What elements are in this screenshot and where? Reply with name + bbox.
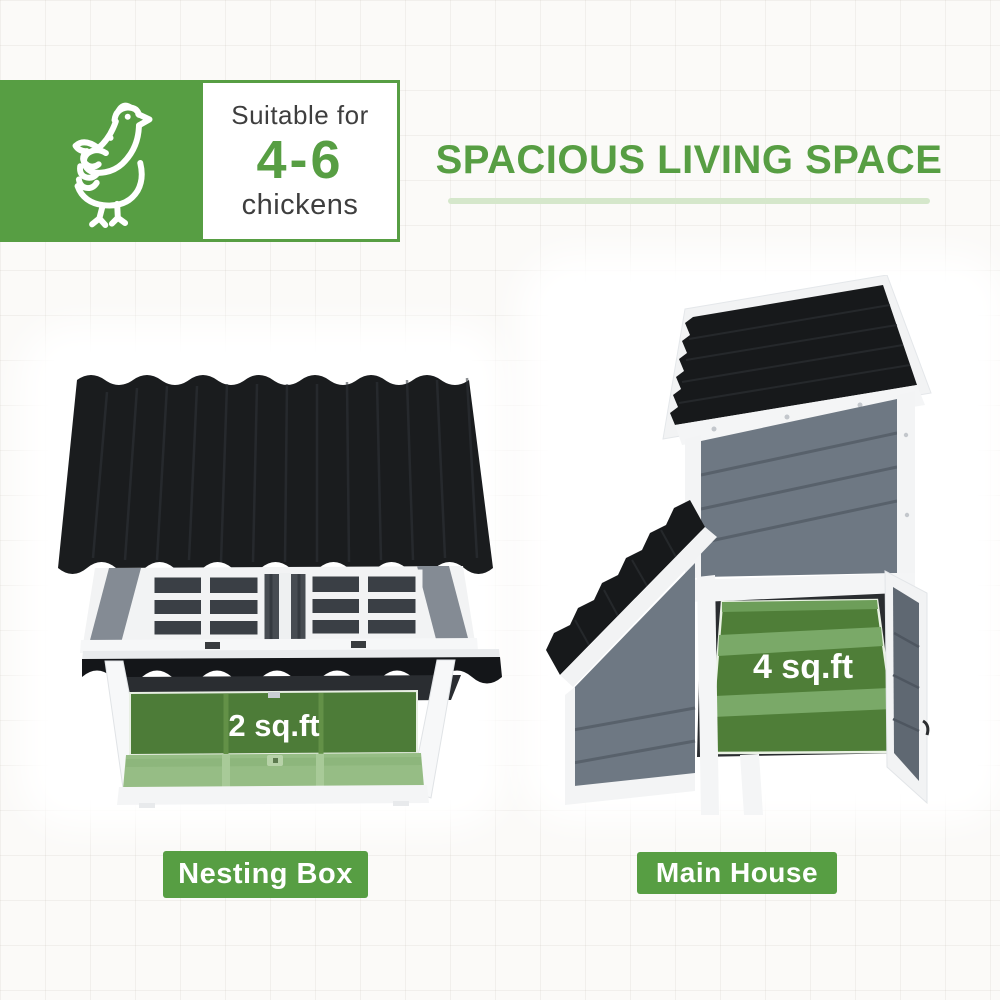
open-door [885,571,928,803]
section-title: SPACIOUS LIVING SPACE [428,138,950,183]
coop-facade [80,566,478,653]
right-corner-post [897,391,915,577]
chicken-dot [108,135,114,141]
area-label-main: 4 sq.ft [753,648,853,686]
figure-main-house: 4 sq.ft [535,275,995,815]
lid-hinge [205,642,220,649]
title-underline [448,198,930,204]
door-panel [893,587,919,781]
window-left [151,574,261,638]
caption-nesting-box: Nesting Box [163,851,368,898]
side-nesting-box [546,500,717,805]
capacity-suffix: chickens [242,189,359,222]
window-right [309,573,419,637]
chicken-tile [0,80,200,242]
nesting-box-open: 2 sq.ft [105,660,461,808]
caption-main-house: Main House [637,852,837,894]
capacity-range: 4-6 [256,132,343,189]
chicken-icon [34,94,166,228]
capacity-prefix: Suitable for [231,100,369,131]
capacity-badge: Suitable for 4-6 chickens [0,80,400,242]
area-label-nesting: 2 sq.ft [228,708,319,743]
main-floor-highlight: 4 sq.ft [710,600,898,753]
coop-roof [58,375,493,574]
center-leg [740,754,763,815]
figure-nesting-box: 2 sq.ft [55,362,505,810]
chicken-eye [125,114,131,120]
lid-hinge [351,641,366,648]
capacity-info-box: Suitable for 4-6 chickens [200,80,400,242]
